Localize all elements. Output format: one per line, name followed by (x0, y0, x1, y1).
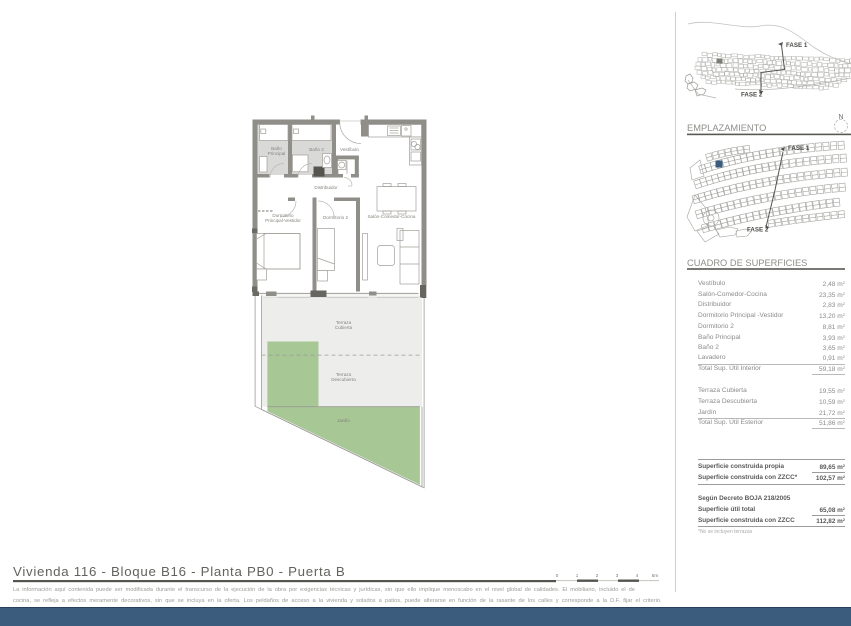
svg-text:N: N (838, 114, 843, 121)
svg-text:FASE 1: FASE 1 (788, 145, 810, 152)
svg-text:0: 0 (556, 573, 559, 578)
svg-text:2: 2 (596, 573, 599, 578)
svg-text:FASE 2: FASE 2 (741, 92, 763, 99)
svg-text:FASE 1: FASE 1 (786, 42, 808, 49)
svg-text:1: 1 (576, 573, 579, 578)
svg-text:FASE 2: FASE 2 (747, 227, 769, 234)
svg-text:5m: 5m (652, 573, 659, 578)
svg-text:4: 4 (636, 573, 639, 578)
svg-text:3: 3 (616, 573, 619, 578)
